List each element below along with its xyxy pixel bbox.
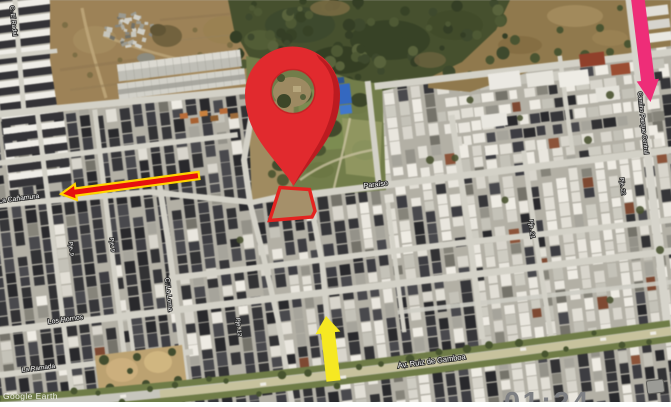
svg-text:01:24: 01:24	[504, 387, 591, 402]
svg-text:Google Earth: Google Earth	[3, 391, 58, 401]
